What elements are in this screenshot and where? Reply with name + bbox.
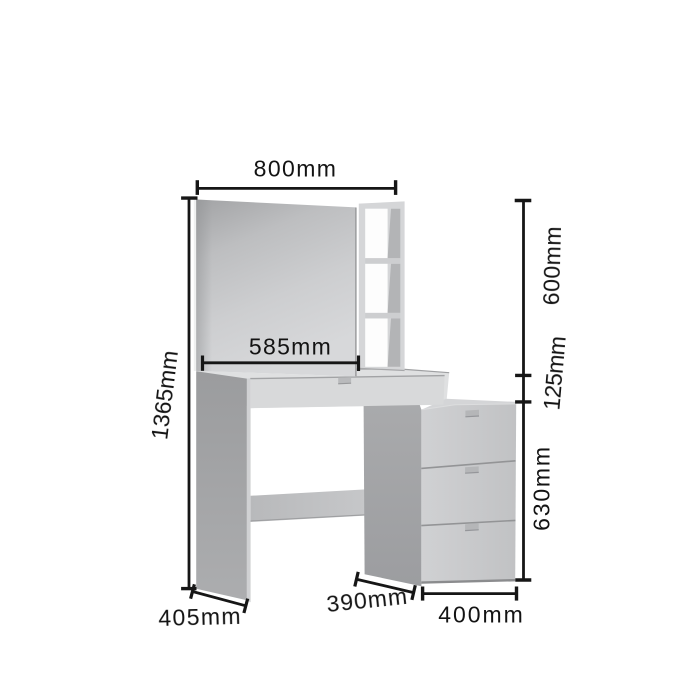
svg-text:600mm: 600mm <box>538 226 566 306</box>
svg-text:405mm: 405mm <box>158 603 242 631</box>
svg-text:800mm: 800mm <box>254 155 338 181</box>
svg-text:630mm: 630mm <box>529 445 555 531</box>
svg-text:400mm: 400mm <box>438 602 524 628</box>
svg-text:585mm: 585mm <box>249 334 332 360</box>
